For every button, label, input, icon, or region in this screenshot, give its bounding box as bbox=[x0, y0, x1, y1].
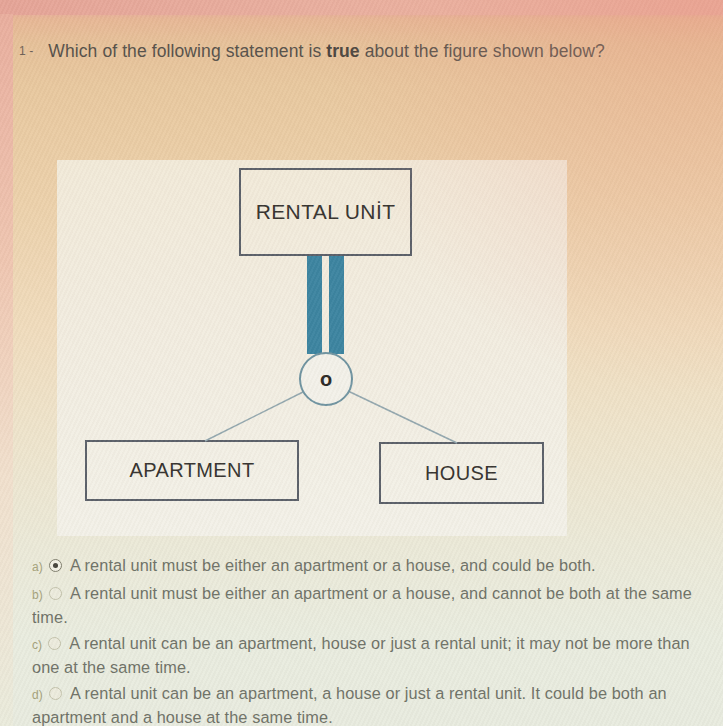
connector-lines bbox=[57, 160, 567, 536]
question-bold-word: true bbox=[326, 41, 359, 61]
circle-label: o bbox=[320, 368, 332, 391]
option-row-b[interactable]: b)A rental unit must be either an apartm… bbox=[32, 582, 702, 628]
left-edge-strip bbox=[0, 14, 13, 726]
radio-option-d[interactable] bbox=[49, 687, 62, 700]
option-letter-a: a) bbox=[32, 560, 43, 574]
radio-option-b[interactable] bbox=[49, 587, 62, 600]
option-text-d[interactable]: A rental unit can be an apartment, a hou… bbox=[32, 684, 667, 726]
quiz-page: 1 -Which of the following statement is t… bbox=[0, 0, 723, 726]
question-number: 1 - bbox=[19, 44, 33, 58]
option-row-c[interactable]: c)A rental unit can be an apartment, hou… bbox=[32, 632, 702, 678]
question: 1 -Which of the following statement is t… bbox=[19, 40, 711, 63]
option-letter-c: c) bbox=[32, 638, 42, 652]
option-text-c[interactable]: A rental unit can be an apartment, house… bbox=[32, 634, 690, 676]
option-text-b[interactable]: A rental unit must be either an apartmen… bbox=[32, 584, 692, 626]
option-row-a[interactable]: a)A rental unit must be either an apartm… bbox=[32, 554, 702, 578]
option-letter-b: b) bbox=[32, 588, 43, 602]
question-text-after: about the figure shown below? bbox=[360, 41, 605, 61]
figure-panel: RENTAL UNİT o APARTMENT HOUSE bbox=[57, 160, 567, 536]
question-text-before: Which of the following statement is bbox=[48, 41, 326, 61]
top-edge-strip bbox=[0, 0, 723, 15]
radio-option-a[interactable] bbox=[49, 559, 62, 572]
option-letter-d: d) bbox=[32, 688, 43, 702]
connector-circle: o bbox=[299, 352, 353, 406]
option-text-a[interactable]: A rental unit must be either an apartmen… bbox=[70, 556, 596, 574]
option-row-d[interactable]: d)A rental unit can be an apartment, a h… bbox=[32, 682, 702, 726]
answer-options: a)A rental unit must be either an apartm… bbox=[32, 554, 702, 726]
radio-option-c[interactable] bbox=[48, 637, 61, 650]
